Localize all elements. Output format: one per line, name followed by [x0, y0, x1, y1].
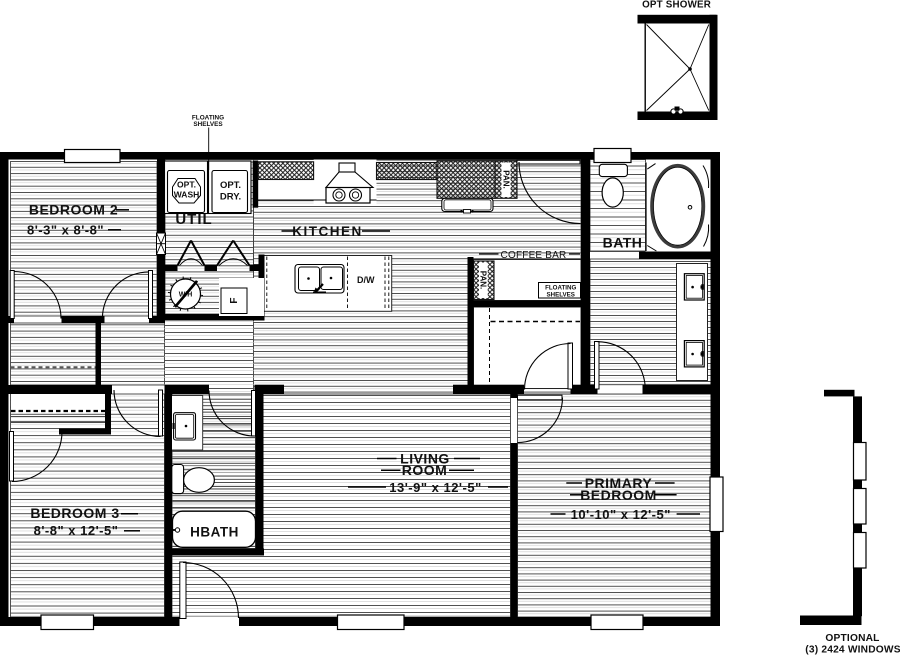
svg-text:KITCHEN: KITCHEN: [292, 224, 363, 239]
svg-text:BEDROOM 3: BEDROOM 3: [30, 505, 119, 521]
svg-text:WASH: WASH: [174, 190, 200, 200]
svg-text:10'-10" x 12'-5": 10'-10" x 12'-5": [571, 507, 671, 522]
svg-text:ROOM: ROOM: [402, 462, 448, 478]
svg-text:D/W: D/W: [357, 275, 375, 285]
svg-text:13'-9" x 12'-5": 13'-9" x 12'-5": [389, 480, 482, 495]
svg-text:BEDROOM: BEDROOM: [580, 487, 657, 503]
svg-text:BEDROOM 2: BEDROOM 2: [29, 202, 118, 218]
svg-text:PAN.: PAN.: [479, 271, 488, 290]
svg-text:8'-8" x 12'-5": 8'-8" x 12'-5": [34, 523, 119, 538]
svg-text:8'-3" x 8'-8": 8'-3" x 8'-8": [27, 223, 104, 238]
svg-text:OPT SHOWER: OPT SHOWER: [642, 0, 711, 11]
svg-text:OPT.: OPT.: [220, 180, 241, 191]
svg-text:SHELVES: SHELVES: [546, 291, 574, 298]
svg-text:PAN.: PAN.: [501, 170, 510, 189]
svg-text:(3) 2424 WINDOWS: (3) 2424 WINDOWS: [805, 645, 900, 656]
svg-text:COFFEE BAR: COFFEE BAR: [501, 250, 567, 261]
svg-text:F: F: [229, 297, 240, 303]
svg-text:BATH: BATH: [603, 235, 643, 251]
svg-text:OPTIONAL: OPTIONAL: [825, 633, 879, 644]
svg-text:OPT.: OPT.: [177, 180, 196, 190]
svg-text:SHELVES: SHELVES: [193, 121, 223, 128]
svg-text:HBATH: HBATH: [190, 525, 239, 540]
svg-text:UTIL: UTIL: [175, 211, 212, 228]
svg-text:DRY.: DRY.: [220, 192, 241, 203]
